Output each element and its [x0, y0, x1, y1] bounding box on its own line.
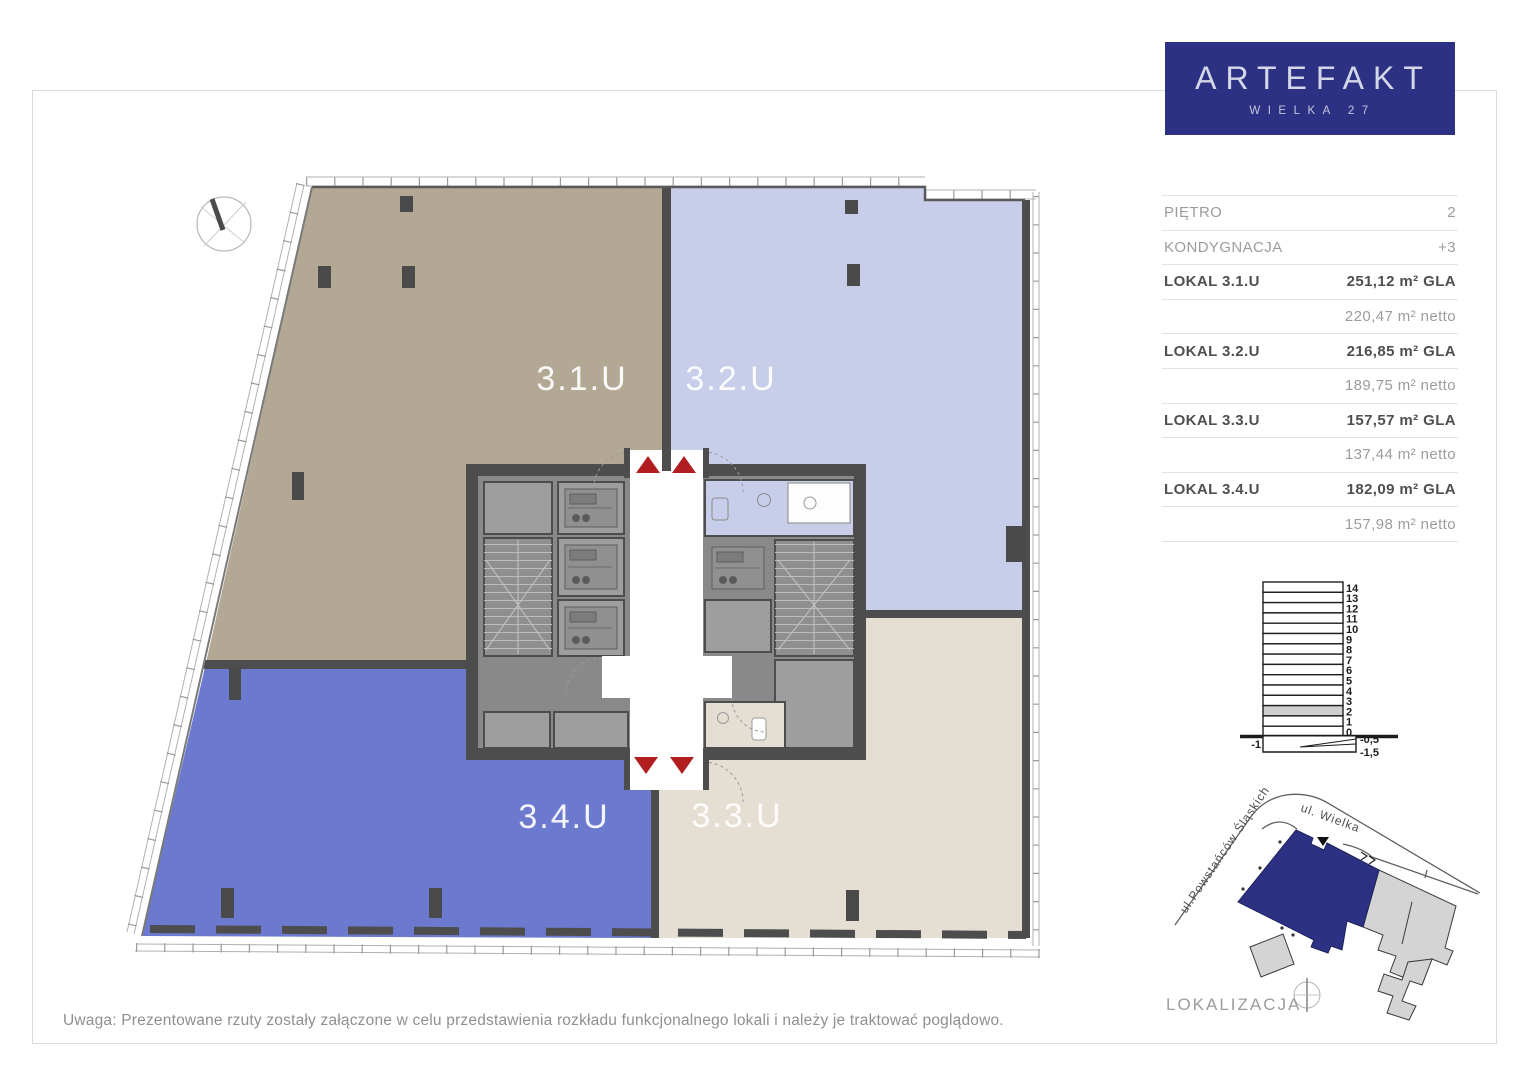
- row-value: 157,98 m² netto: [1164, 516, 1456, 533]
- section-floor: [1263, 695, 1343, 705]
- level-minus1: -1: [1251, 739, 1261, 751]
- logo-title: ARTEFAKT: [1188, 60, 1432, 97]
- section-floor: [1263, 603, 1343, 613]
- building-section: 14131211109876543210 -1 -0,5 -1,5: [1238, 576, 1450, 776]
- table-row: 157,98 m² netto: [1162, 507, 1458, 542]
- section-floor: [1263, 716, 1343, 726]
- section-floor: [1263, 613, 1343, 623]
- table-row: LOKAL 3.3.U157,57 m² GLA: [1162, 404, 1458, 439]
- table-row: LOKAL 3.2.U216,85 m² GLA: [1162, 334, 1458, 369]
- section-floor: [1263, 706, 1343, 716]
- section-floors: 14131211109876543210: [1263, 582, 1359, 739]
- unit-label-3.1: 3.1.U: [536, 360, 627, 398]
- section-floor: [1263, 664, 1343, 674]
- location-map: ul.Powstańców Śląskich ul. Wielka LOKALI…: [1150, 782, 1520, 1050]
- row-value: 182,09 m² GLA: [1260, 481, 1456, 498]
- row-value: 137,44 m² netto: [1164, 446, 1456, 463]
- logo-subtitle: WIELKA 27: [1244, 105, 1375, 117]
- row-label: LOKAL 3.4.U: [1164, 481, 1260, 498]
- table-row: 220,47 m² netto: [1162, 300, 1458, 335]
- row-label: LOKAL 3.3.U: [1164, 412, 1260, 429]
- bathroom-top: [705, 480, 854, 536]
- basement: [1263, 737, 1356, 753]
- unit-label-3.4: 3.4.U: [518, 798, 609, 836]
- table-row: 189,75 m² netto: [1162, 369, 1458, 404]
- floor-plan: 3.1.U 3.2.U 3.4.U 3.3.U: [0, 0, 1140, 1080]
- section-floor: [1263, 685, 1343, 695]
- unit-label-3.3: 3.3.U: [691, 797, 782, 835]
- table-row: LOKAL 3.1.U251,12 m² GLA: [1162, 265, 1458, 300]
- row-value: 220,47 m² netto: [1164, 308, 1456, 325]
- level-minus05: -0,5: [1360, 734, 1379, 746]
- row-label: LOKAL 3.1.U: [1164, 273, 1260, 290]
- section-floor: [1263, 582, 1343, 592]
- section-floor: [1263, 592, 1343, 602]
- row-value: 2: [1222, 204, 1456, 221]
- row-value: 251,12 m² GLA: [1260, 273, 1456, 290]
- street-label-2: ul. Wielka: [1299, 801, 1362, 835]
- row-label: KONDYGNACJA: [1164, 239, 1283, 256]
- section-floor: [1263, 634, 1343, 644]
- unit-label-3.2: 3.2.U: [685, 360, 776, 398]
- compass-icon: [197, 197, 251, 251]
- section-floor: [1263, 623, 1343, 633]
- logo: ARTEFAKT WIELKA 27: [1165, 42, 1455, 135]
- info-table: PIĘTRO2KONDYGNACJA+3LOKAL 3.1.U251,12 m²…: [1162, 195, 1458, 542]
- table-row: 137,44 m² netto: [1162, 438, 1458, 473]
- row-label: LOKAL 3.2.U: [1164, 343, 1260, 360]
- level-minus15: -1,5: [1360, 747, 1379, 759]
- table-row: KONDYGNACJA+3: [1162, 231, 1458, 266]
- section-floor: [1263, 644, 1343, 654]
- row-value: 189,75 m² netto: [1164, 377, 1456, 394]
- footer-note: Uwaga: Prezentowane rzuty zostały załącz…: [63, 1012, 1004, 1030]
- row-label: PIĘTRO: [1164, 204, 1222, 221]
- row-value: 157,57 m² GLA: [1260, 412, 1456, 429]
- map-caption: LOKALIZACJA: [1166, 995, 1301, 1014]
- row-value: 216,85 m² GLA: [1260, 343, 1456, 360]
- table-row: LOKAL 3.4.U182,09 m² GLA: [1162, 473, 1458, 508]
- section-floor: [1263, 654, 1343, 664]
- table-row: PIĘTRO2: [1162, 196, 1458, 231]
- row-value: +3: [1283, 239, 1456, 256]
- section-floor: [1263, 675, 1343, 685]
